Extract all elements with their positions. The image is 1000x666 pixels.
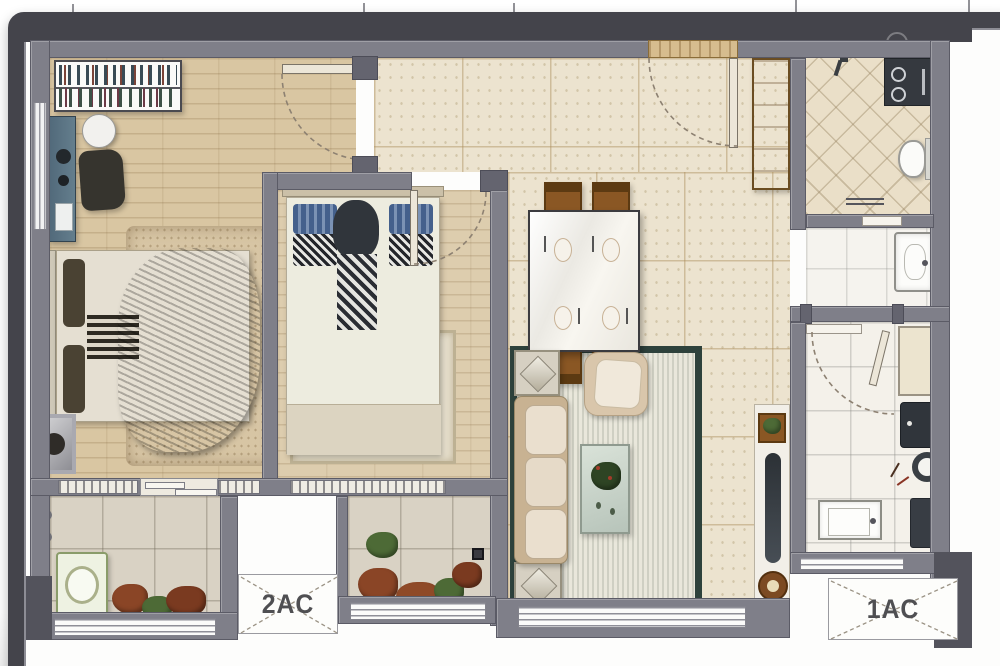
books-row xyxy=(59,65,177,85)
pillow-patterned xyxy=(293,234,337,266)
shower-head-icon xyxy=(840,58,848,62)
pillow xyxy=(63,259,85,327)
sliding-panel xyxy=(175,489,217,496)
sofa-cushion xyxy=(525,457,567,507)
petal xyxy=(610,508,615,515)
books-row xyxy=(59,88,177,107)
place-setting xyxy=(554,238,572,262)
desk-chair xyxy=(78,149,126,212)
wall-right xyxy=(930,40,950,640)
ac-platform-1-label: 1AC xyxy=(834,579,952,639)
chair-backrest xyxy=(594,184,628,192)
sofa xyxy=(514,396,568,564)
bookshelf xyxy=(54,60,182,112)
wash-basin xyxy=(894,232,934,292)
utensil-icon xyxy=(544,236,546,252)
wall-balcony-divider xyxy=(220,496,238,622)
wall-kitchen-left xyxy=(790,322,806,556)
balcony-sliding-door xyxy=(140,478,218,496)
armchair xyxy=(584,352,648,416)
low-window xyxy=(58,480,138,494)
wall-bedroom2-top xyxy=(262,172,412,190)
place-setting xyxy=(602,306,620,330)
master-bedroom-door-swing-icon xyxy=(282,74,366,162)
round-planter xyxy=(758,571,788,601)
wall-bedroom2-right xyxy=(490,190,508,626)
window-left xyxy=(33,102,47,230)
washer-drum xyxy=(65,566,99,604)
planter-center xyxy=(767,580,779,592)
towel-bar xyxy=(846,203,884,205)
wall-cap xyxy=(892,304,904,324)
burner-dot xyxy=(907,421,912,426)
entry-door-swing-icon xyxy=(649,58,737,146)
sofa-cushion xyxy=(525,405,567,455)
washing-machine xyxy=(56,552,108,616)
armchair-cushion xyxy=(593,358,642,409)
shower-rail xyxy=(922,69,925,95)
utensil-icon xyxy=(578,308,580,324)
place-setting xyxy=(602,238,620,262)
wall-cap xyxy=(352,56,378,80)
dining-table xyxy=(528,210,640,352)
console-cabinet xyxy=(754,404,790,608)
side-table xyxy=(514,350,560,396)
flower-dot xyxy=(608,476,612,480)
desk-cup xyxy=(58,175,69,186)
flower-dot xyxy=(596,466,600,470)
second-bedroom-door-swing-icon xyxy=(414,192,486,266)
cooktop xyxy=(900,402,934,448)
desk xyxy=(48,116,76,242)
shoe-cabinet xyxy=(752,58,790,190)
bed-blanket xyxy=(118,248,260,452)
utensil-icon xyxy=(592,236,594,252)
sliding-panel xyxy=(145,482,185,489)
round-stool xyxy=(82,114,116,148)
bed2-runner xyxy=(337,254,377,330)
plant xyxy=(763,418,781,434)
planter-box xyxy=(758,413,786,443)
pillow xyxy=(63,345,85,413)
ac-platform-1: 1AC xyxy=(828,578,958,640)
sink-basin xyxy=(828,508,870,536)
bathroom-door-threshold xyxy=(862,216,902,226)
wall-bedroom-divider xyxy=(262,172,278,496)
window-kitchen xyxy=(800,557,904,570)
wall-top xyxy=(30,40,950,58)
floor-drain-icon xyxy=(472,548,484,560)
toilet xyxy=(898,140,926,178)
pillow-blue xyxy=(293,204,337,234)
ac-platform-2: 2AC xyxy=(238,574,338,634)
plant xyxy=(366,532,398,558)
low-window xyxy=(290,480,446,494)
kitchen-door-swing-icon xyxy=(812,332,894,414)
wall-kitchen-top xyxy=(790,306,950,322)
place-setting xyxy=(554,306,572,330)
bed2-foot-fold xyxy=(287,404,441,455)
coffee-table xyxy=(580,444,630,534)
shower-area xyxy=(884,58,934,106)
window-balcony2 xyxy=(350,602,486,620)
wall-bathroom-left xyxy=(790,58,806,230)
towel-bar xyxy=(846,198,884,200)
shower-control-icon xyxy=(891,87,906,102)
window-living xyxy=(518,606,746,628)
dimension-tick xyxy=(795,0,797,12)
plant xyxy=(452,562,482,588)
entry-threshold xyxy=(648,40,738,58)
faucet-icon xyxy=(922,260,928,266)
shower-control-icon xyxy=(891,67,906,82)
faucet-icon xyxy=(870,518,876,524)
frame-corner-block xyxy=(26,576,52,640)
wall-cap xyxy=(480,170,508,192)
desk-lamp xyxy=(56,149,71,164)
bed2-throw xyxy=(333,200,379,258)
side-table-inlay xyxy=(520,356,557,393)
wall-cap xyxy=(800,304,812,324)
ac-platform-2-label: 2AC xyxy=(243,575,333,633)
kitchen-sink xyxy=(818,500,882,540)
refrigerator xyxy=(898,326,934,396)
utensil-icon xyxy=(626,308,628,324)
chair-backrest xyxy=(546,184,580,192)
decor-vase xyxy=(765,453,781,563)
desk-pad xyxy=(55,203,73,231)
low-window xyxy=(218,480,260,494)
floor-plan-page: ⌂ xyxy=(0,0,1000,666)
window-balcony1 xyxy=(54,618,216,636)
sofa-cushion xyxy=(525,509,567,559)
petal xyxy=(596,502,601,509)
